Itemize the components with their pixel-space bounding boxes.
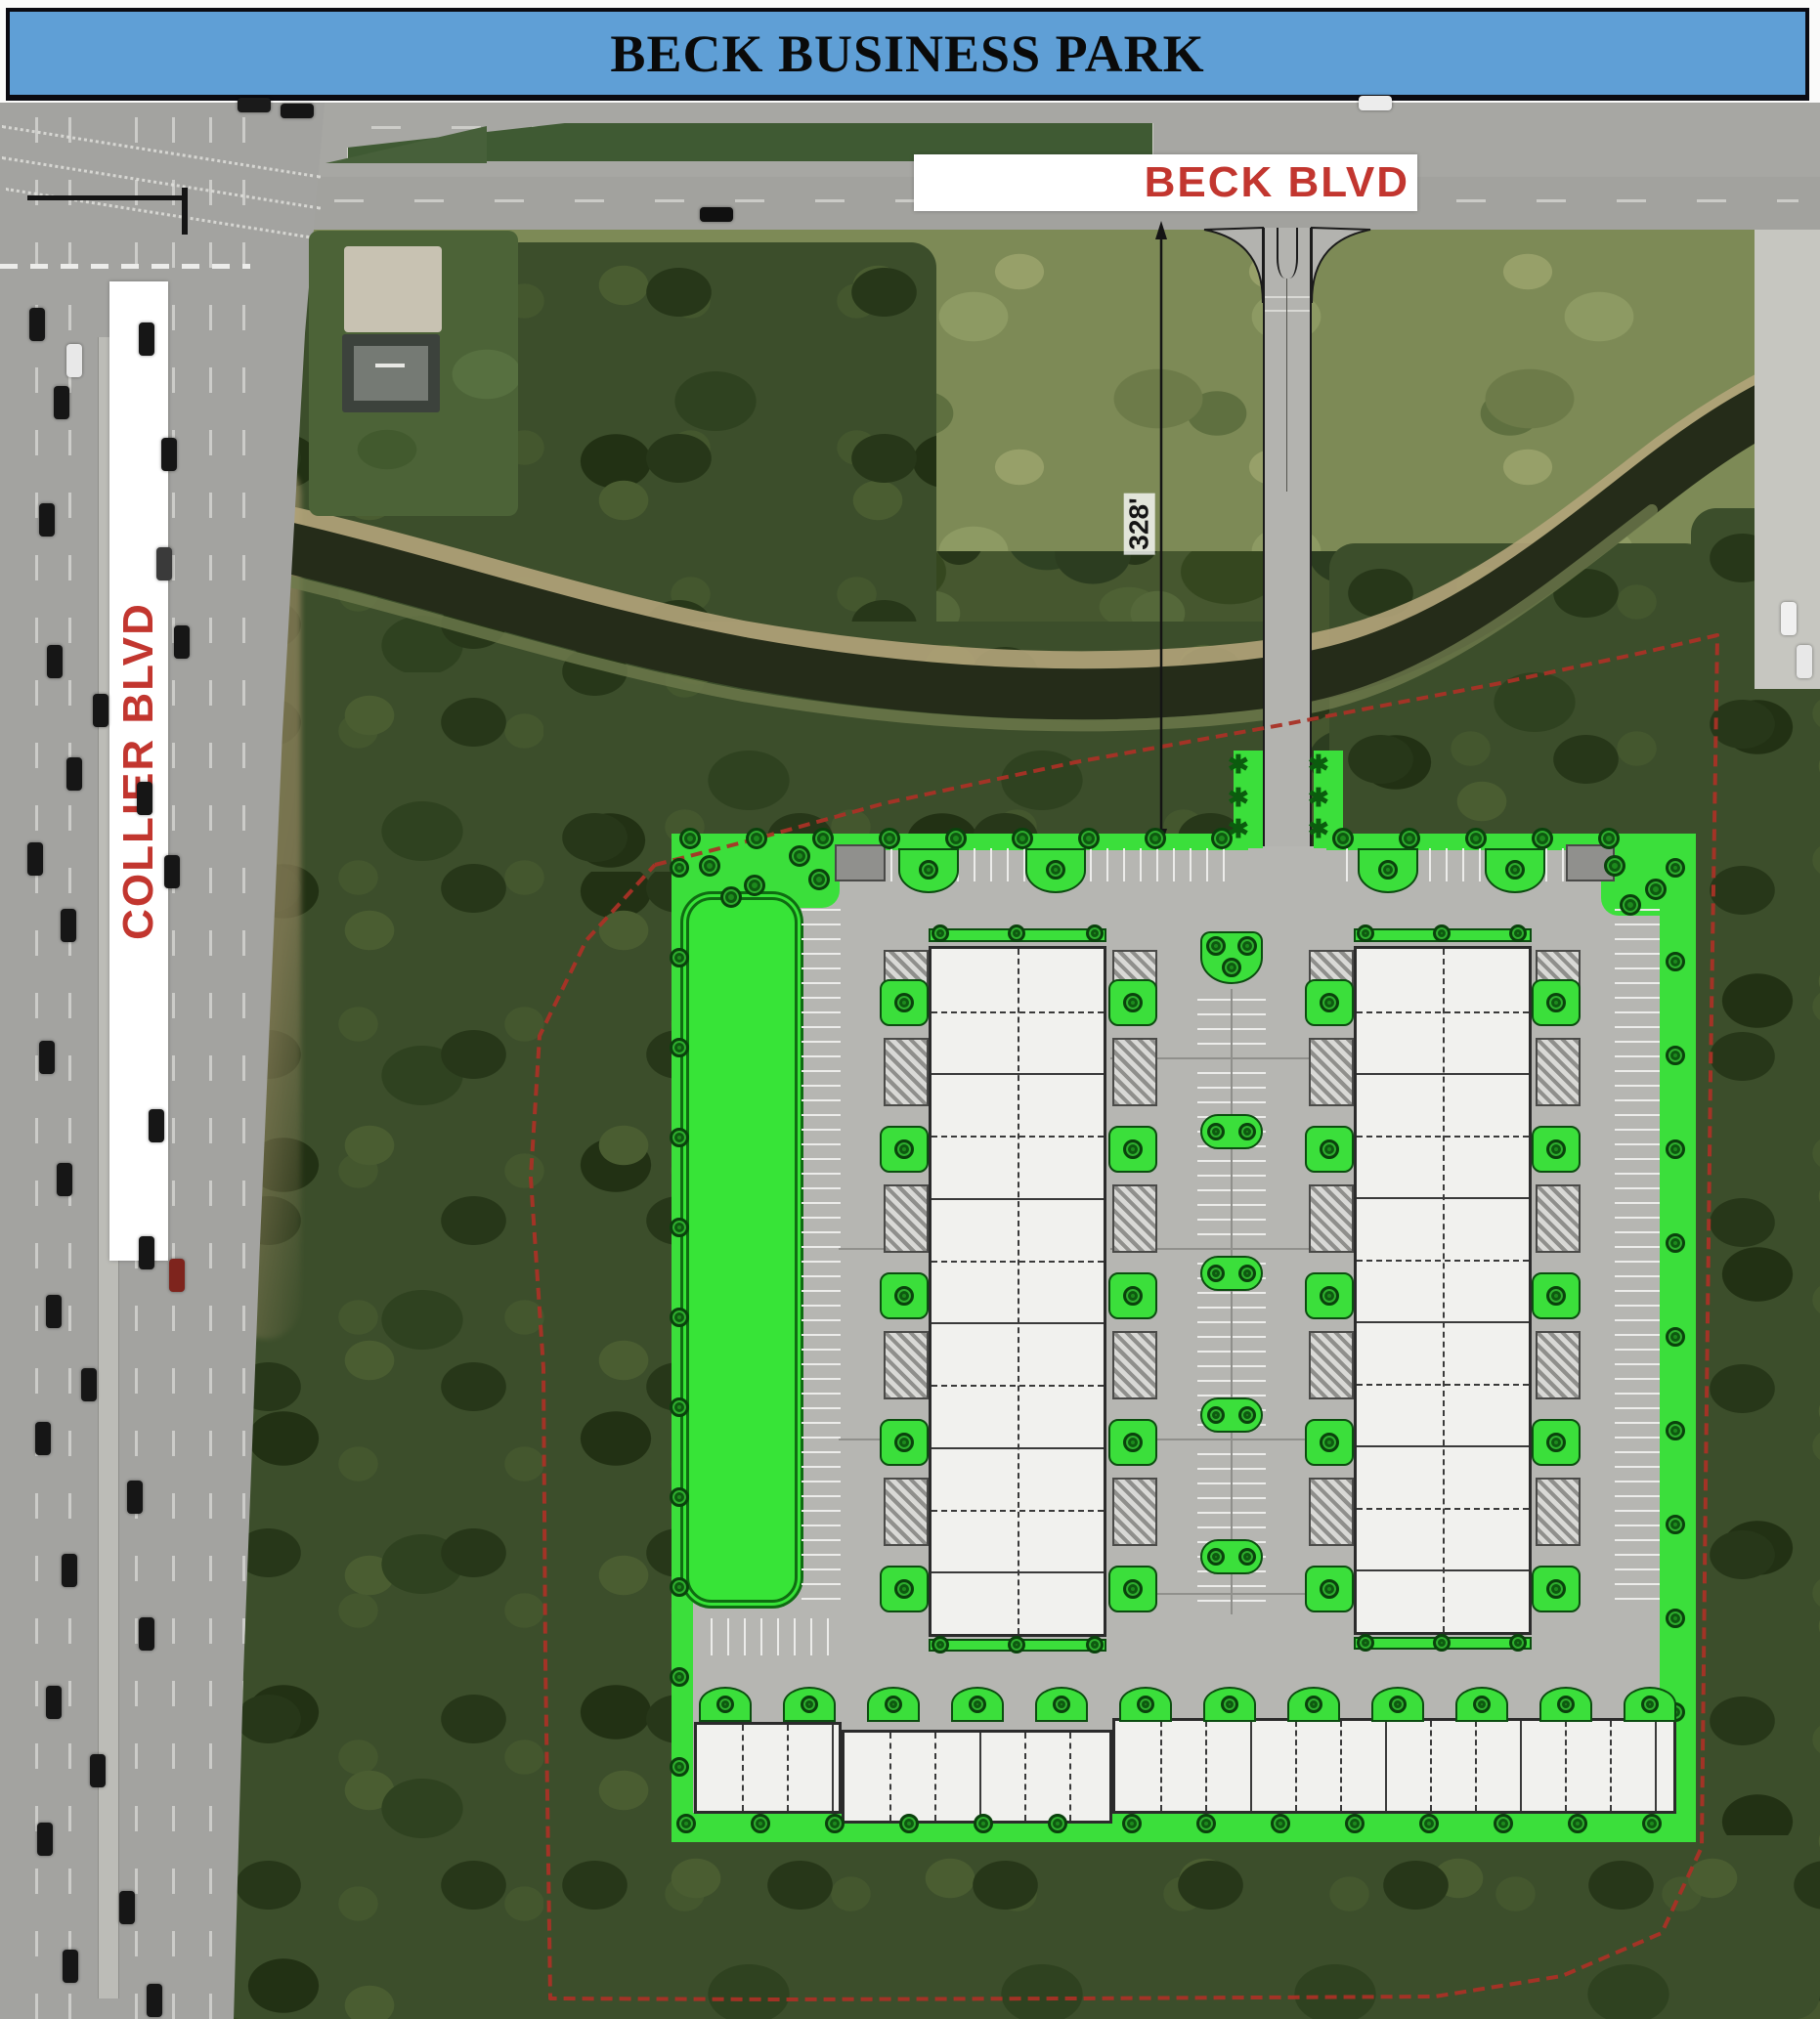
dock-hatch bbox=[1309, 1331, 1354, 1399]
tree-icon bbox=[670, 1757, 689, 1777]
car-icon bbox=[137, 782, 152, 815]
tree-icon bbox=[1666, 952, 1685, 971]
dock-hatch bbox=[1112, 1478, 1157, 1546]
tree-icon bbox=[894, 993, 914, 1012]
beck-blvd-label: BECK BLVD bbox=[914, 154, 1417, 211]
tree-icon bbox=[825, 1814, 845, 1833]
tree-icon bbox=[744, 875, 765, 896]
tree-icon bbox=[670, 1397, 689, 1417]
tree-icon bbox=[1145, 828, 1166, 849]
star-tree-icon: ✱ bbox=[1228, 752, 1249, 777]
tree-icon bbox=[751, 1814, 770, 1833]
tree-icon bbox=[1666, 1139, 1685, 1159]
tree-icon bbox=[932, 1636, 949, 1654]
tree-icon bbox=[716, 1696, 734, 1713]
tree-icon bbox=[1320, 1579, 1339, 1599]
dock-hatch bbox=[1536, 1038, 1581, 1106]
car-icon bbox=[90, 1754, 106, 1787]
tree-icon bbox=[1666, 1046, 1685, 1065]
star-tree-icon: ✱ bbox=[1308, 785, 1329, 810]
tree-icon bbox=[1206, 936, 1226, 956]
tree-icon bbox=[1641, 1696, 1659, 1713]
car-icon bbox=[281, 104, 314, 118]
car-icon bbox=[700, 207, 733, 222]
dock-hatch bbox=[1112, 1038, 1157, 1106]
tree-icon bbox=[879, 828, 900, 849]
tree-icon bbox=[1271, 1814, 1290, 1833]
star-tree-icon: ✱ bbox=[1308, 752, 1329, 777]
tree-icon bbox=[1666, 1609, 1685, 1628]
tree-icon bbox=[1238, 1123, 1256, 1140]
tree-icon bbox=[670, 1038, 689, 1057]
tree-icon bbox=[1123, 993, 1143, 1012]
tree-icon bbox=[1645, 879, 1667, 900]
dock-hatch bbox=[884, 1184, 929, 1253]
car-icon bbox=[57, 1163, 72, 1196]
tree-icon bbox=[720, 886, 742, 908]
dimension-arrow-top bbox=[1155, 221, 1167, 239]
car-icon bbox=[61, 909, 76, 942]
tree-icon bbox=[1568, 1814, 1587, 1833]
car-icon bbox=[39, 1041, 55, 1074]
car-icon bbox=[35, 1422, 51, 1455]
tree-icon bbox=[1332, 828, 1354, 849]
car-icon bbox=[156, 547, 172, 580]
car-icon bbox=[27, 842, 43, 876]
dock-hatch bbox=[1309, 1478, 1354, 1546]
site-plan-page: BECK BLVD COLLIER BLVD 328' BECK BUSINES… bbox=[0, 0, 1820, 2019]
tree-icon bbox=[1433, 1634, 1451, 1652]
tree-icon bbox=[670, 948, 689, 967]
tree-icon bbox=[670, 1577, 689, 1597]
car-icon bbox=[147, 1984, 162, 2017]
tree-icon bbox=[1320, 1286, 1339, 1306]
tree-icon bbox=[1207, 1265, 1225, 1282]
tree-icon bbox=[894, 1579, 914, 1599]
tree-icon bbox=[1557, 1696, 1575, 1713]
tree-icon bbox=[670, 1308, 689, 1327]
tree-icon bbox=[1620, 894, 1641, 916]
car-icon bbox=[238, 98, 271, 112]
tree-icon bbox=[699, 855, 720, 877]
tree-icon bbox=[1505, 860, 1525, 880]
tree-icon bbox=[894, 1139, 914, 1159]
tree-icon bbox=[1378, 860, 1398, 880]
star-tree-icon: ✱ bbox=[1308, 816, 1329, 841]
tree-icon bbox=[812, 828, 834, 849]
car-icon bbox=[93, 694, 108, 727]
car-icon bbox=[62, 1554, 77, 1587]
dock-hatch bbox=[1536, 1478, 1581, 1546]
tree-icon bbox=[1419, 1814, 1439, 1833]
car-icon bbox=[169, 1259, 185, 1292]
tree-icon bbox=[801, 1696, 818, 1713]
tree-icon bbox=[1048, 1814, 1067, 1833]
tree-icon bbox=[1207, 1123, 1225, 1140]
tree-icon bbox=[1196, 1814, 1216, 1833]
tree-icon bbox=[1546, 993, 1566, 1012]
car-icon bbox=[29, 308, 45, 341]
tree-icon bbox=[1008, 924, 1025, 942]
dock-hatch bbox=[884, 1038, 929, 1106]
tree-icon bbox=[894, 1286, 914, 1306]
tree-icon bbox=[1086, 1636, 1104, 1654]
tree-icon bbox=[1123, 1139, 1143, 1159]
car-icon bbox=[54, 386, 69, 419]
tree-icon bbox=[1320, 1433, 1339, 1452]
car-icon bbox=[161, 438, 177, 471]
tree-icon bbox=[789, 845, 810, 867]
tree-icon bbox=[1012, 828, 1033, 849]
tree-icon bbox=[1532, 828, 1553, 849]
car-icon bbox=[46, 1295, 62, 1328]
tree-icon bbox=[1137, 1696, 1154, 1713]
tree-icon bbox=[1509, 924, 1527, 942]
tree-icon bbox=[894, 1433, 914, 1452]
tree-icon bbox=[1305, 1696, 1322, 1713]
tree-icon bbox=[969, 1696, 986, 1713]
car-icon bbox=[174, 625, 190, 659]
dimension-label-text: 328' bbox=[1124, 493, 1155, 554]
collier-blvd-label-text: COLLIER BLVD bbox=[114, 602, 163, 940]
tree-icon bbox=[1207, 1548, 1225, 1566]
tree-icon bbox=[1078, 828, 1100, 849]
tree-icon bbox=[1546, 1579, 1566, 1599]
car-icon bbox=[149, 1109, 164, 1142]
tree-icon bbox=[746, 828, 767, 849]
tree-icon bbox=[670, 1128, 689, 1147]
car-icon bbox=[37, 1823, 53, 1856]
tree-icon bbox=[676, 1814, 696, 1833]
tree-icon bbox=[1666, 1233, 1685, 1253]
tree-icon bbox=[1357, 1634, 1374, 1652]
tree-icon bbox=[899, 1814, 919, 1833]
tree-icon bbox=[1598, 828, 1620, 849]
tree-icon bbox=[1123, 1433, 1143, 1452]
star-tree-icon: ✱ bbox=[1228, 816, 1249, 841]
tree-icon bbox=[1509, 1634, 1527, 1652]
tree-icon bbox=[1345, 1814, 1365, 1833]
tree-icon bbox=[1123, 1286, 1143, 1306]
car-icon bbox=[164, 855, 180, 888]
tree-icon bbox=[1053, 1696, 1070, 1713]
dock-hatch bbox=[1112, 1331, 1157, 1399]
dock-hatch bbox=[1536, 1331, 1581, 1399]
tree-icon bbox=[1237, 936, 1257, 956]
tree-icon bbox=[1546, 1433, 1566, 1452]
tree-icon bbox=[1399, 828, 1420, 849]
car-icon bbox=[139, 322, 154, 356]
tree-icon bbox=[670, 1487, 689, 1507]
dock-hatch bbox=[1536, 1184, 1581, 1253]
car-icon bbox=[119, 1891, 135, 1924]
tree-icon bbox=[1222, 958, 1241, 977]
tree-icon bbox=[1642, 1814, 1662, 1833]
car-icon bbox=[66, 344, 82, 377]
tree-icon bbox=[1666, 858, 1685, 878]
dock-hatch bbox=[1309, 1038, 1354, 1106]
tree-icon bbox=[679, 828, 701, 849]
car-icon bbox=[139, 1617, 154, 1651]
beck-blvd-label-text: BECK BLVD bbox=[1145, 158, 1409, 207]
dock-hatch bbox=[1309, 1184, 1354, 1253]
tree-icon bbox=[1465, 828, 1487, 849]
tree-icon bbox=[1433, 924, 1451, 942]
tree-icon bbox=[885, 1696, 902, 1713]
tree-icon bbox=[1494, 1814, 1513, 1833]
car-icon bbox=[139, 1236, 154, 1269]
tree-icon bbox=[1546, 1286, 1566, 1306]
title-banner: BECK BUSINESS PARK bbox=[6, 8, 1809, 101]
car-icon bbox=[81, 1368, 97, 1401]
tree-icon bbox=[1357, 924, 1374, 942]
car-icon bbox=[127, 1481, 143, 1514]
page-title: BECK BUSINESS PARK bbox=[610, 23, 1204, 84]
tree-icon bbox=[932, 924, 949, 942]
tree-icon bbox=[1221, 1696, 1238, 1713]
tree-icon bbox=[1086, 924, 1104, 942]
tree-icon bbox=[808, 869, 830, 890]
tree-icon bbox=[1238, 1265, 1256, 1282]
tree-icon bbox=[1666, 1515, 1685, 1534]
tree-icon bbox=[1207, 1406, 1225, 1424]
car-icon bbox=[47, 645, 63, 678]
car-icon bbox=[1797, 645, 1812, 678]
tree-icon bbox=[1320, 1139, 1339, 1159]
tree-icon bbox=[670, 1218, 689, 1237]
tree-icon bbox=[1122, 1814, 1142, 1833]
tree-icon bbox=[1666, 1421, 1685, 1440]
tree-icon bbox=[1123, 1579, 1143, 1599]
car-icon bbox=[1359, 96, 1392, 110]
car-icon bbox=[66, 757, 82, 791]
tree-icon bbox=[1238, 1406, 1256, 1424]
dock-hatch bbox=[884, 1331, 929, 1399]
tree-icon bbox=[919, 860, 938, 880]
dock-hatch bbox=[884, 1478, 929, 1546]
tree-icon bbox=[1389, 1696, 1407, 1713]
car-icon bbox=[1781, 602, 1797, 635]
car-icon bbox=[39, 503, 55, 537]
car-icon bbox=[63, 1950, 78, 1983]
tree-icon bbox=[1320, 993, 1339, 1012]
tree-icon bbox=[670, 1667, 689, 1687]
tree-icon bbox=[670, 858, 689, 878]
tree-icon bbox=[1046, 860, 1065, 880]
tree-icon bbox=[945, 828, 967, 849]
car-icon bbox=[46, 1686, 62, 1719]
tree-icon bbox=[1238, 1548, 1256, 1566]
tree-icon bbox=[1604, 855, 1625, 877]
dock-hatch bbox=[1112, 1184, 1157, 1253]
tree-icon bbox=[1008, 1636, 1025, 1654]
dimension-label: 328' bbox=[1118, 479, 1161, 569]
tree-icon bbox=[1546, 1139, 1566, 1159]
tree-icon bbox=[974, 1814, 993, 1833]
tree-icon bbox=[1473, 1696, 1491, 1713]
tree-icon bbox=[1666, 1327, 1685, 1347]
star-tree-icon: ✱ bbox=[1228, 785, 1249, 810]
